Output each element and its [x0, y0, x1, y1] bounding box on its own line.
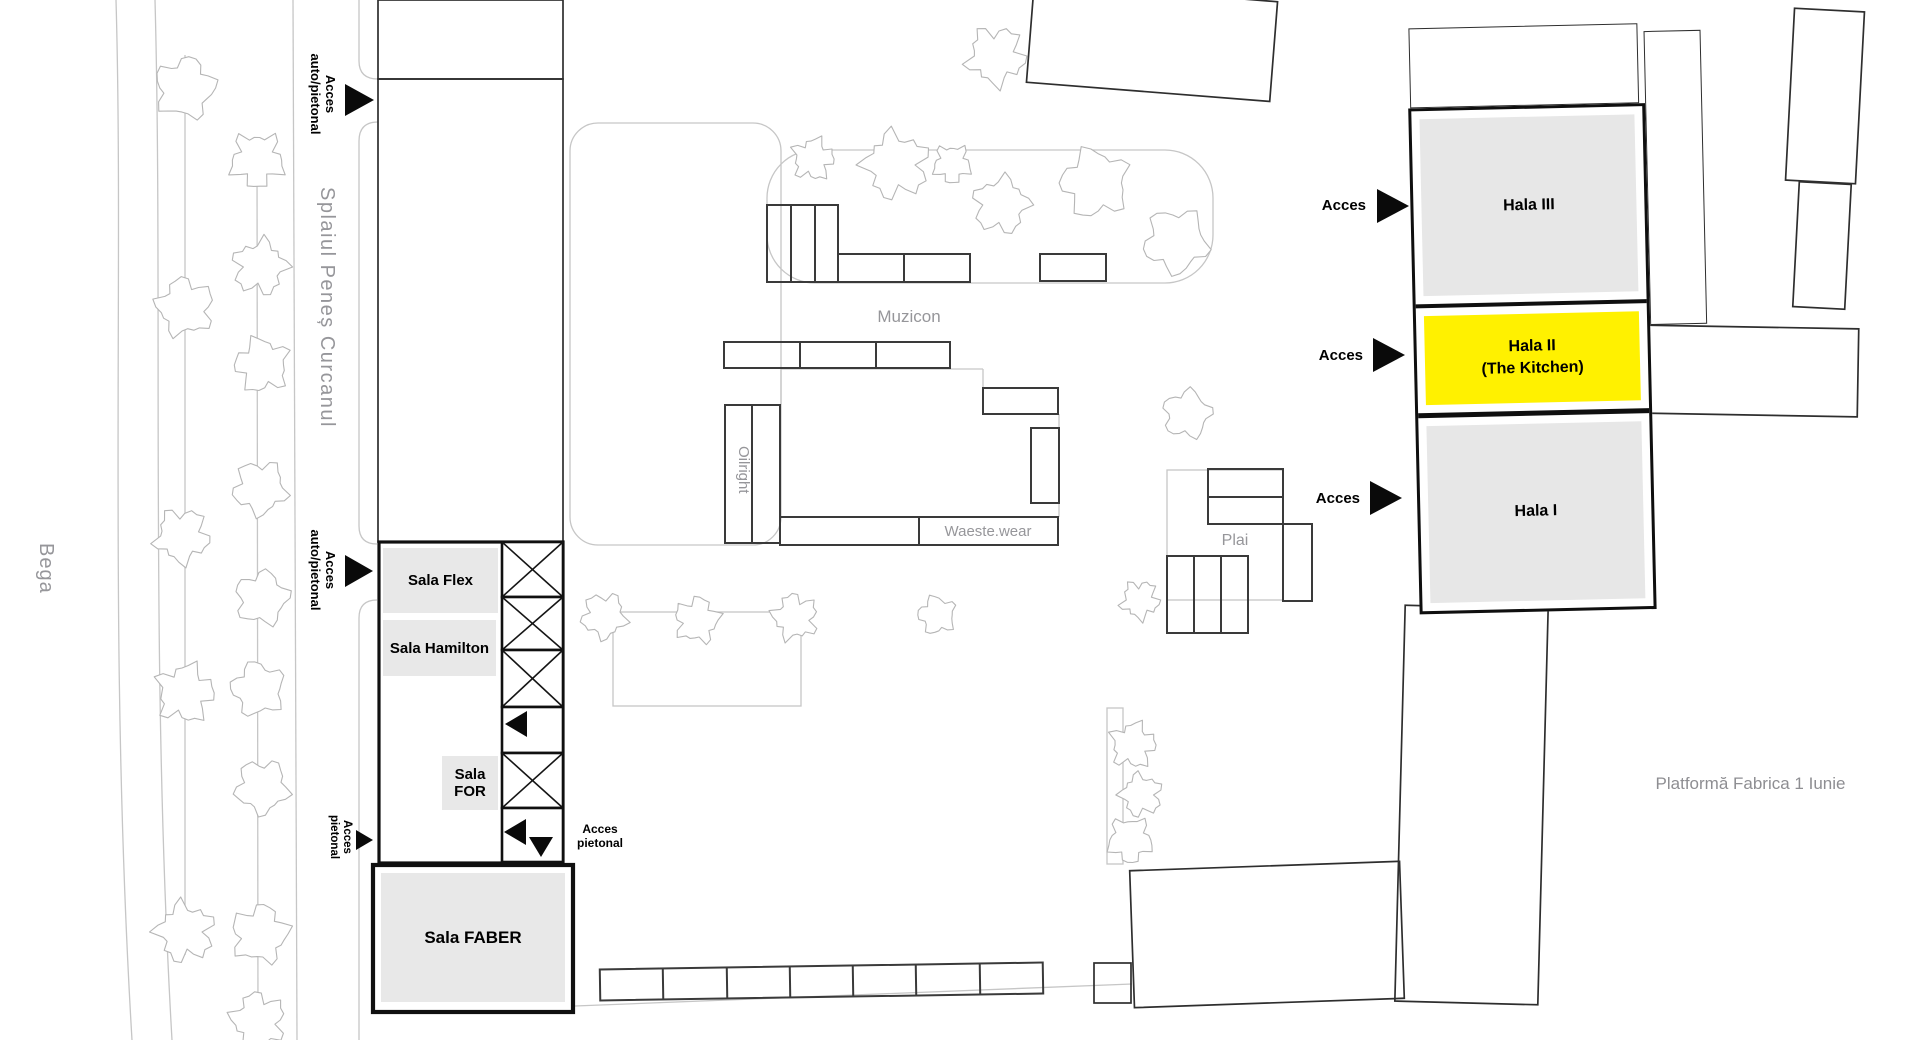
structure-group [1283, 524, 1312, 601]
structure-outline [378, 0, 563, 79]
structure-outline [904, 254, 970, 282]
tree-icon [973, 172, 1034, 234]
structure-outline [983, 388, 1058, 414]
structure-group [838, 254, 904, 282]
tree-icon [962, 29, 1027, 91]
tree-icon [580, 594, 630, 642]
hala-i-area: Hala I [1426, 421, 1645, 603]
tree-icon [236, 569, 291, 627]
access-arrow-right [345, 555, 373, 587]
tree-icon [1163, 387, 1213, 440]
halls-main-block: Hala III Hala II (The Kitchen) Hala I [1408, 103, 1656, 614]
plai-label: Plai [1185, 532, 1285, 550]
access-label-hala1: Acces [1268, 490, 1360, 507]
hala-ii-label-line1: Hala II [1508, 335, 1556, 358]
access-pedestrian-label-left: Acces pietonal [327, 806, 353, 868]
oilright-label: Oilright [735, 446, 752, 516]
sala-hamilton-label: Sala Hamilton [383, 620, 496, 676]
hala-i-section: Hala I [1418, 413, 1653, 612]
structure-group [904, 254, 970, 282]
structure-group [1094, 963, 1131, 1003]
access-label-hala3: Acces [1274, 197, 1366, 214]
structure-group [1040, 254, 1106, 281]
corridor-cell [502, 707, 563, 753]
structure-group [1031, 428, 1059, 503]
muzicon-label: Muzicon [839, 307, 979, 327]
access-pedestrian-label-corridor: Acces pietonal [570, 822, 630, 850]
tree-icon [932, 145, 971, 182]
tree-icon [1059, 147, 1130, 216]
hala-iii-area: Hala III [1419, 114, 1638, 296]
tree-icon [234, 336, 290, 391]
access-arrow-right-small [356, 830, 373, 850]
structure-outline [1793, 182, 1851, 310]
structure-outline [1283, 524, 1312, 601]
tree-icon [676, 596, 724, 644]
structure-outline [1130, 861, 1405, 1007]
site-map: Splaiul Peneș Curcanul Bega Acces auto/p… [0, 0, 1920, 1040]
map-line [359, 122, 378, 544]
halls-annex-north [1408, 23, 1639, 108]
structure-outline [1094, 963, 1131, 1003]
tree-icon [229, 133, 286, 186]
structure-outline [1040, 254, 1106, 281]
tree-icon [232, 234, 292, 294]
structure-outline [1395, 605, 1548, 1005]
structure-outline [1167, 556, 1248, 633]
structure-group [724, 342, 950, 368]
tree-icon [856, 126, 929, 200]
structure-group [378, 79, 563, 542]
street-name-label: Splaiul Peneș Curcanul [315, 187, 338, 467]
tree-icon [1109, 720, 1157, 766]
access-arrow-right [345, 84, 374, 116]
structure-group [1167, 556, 1248, 633]
tree-icon [151, 510, 210, 568]
structure-outline [600, 963, 1043, 1001]
tree-icon [233, 761, 292, 817]
map-line [116, 0, 132, 1040]
access-arrow-right [1370, 481, 1402, 515]
halls-building: Hala III Hala II (The Kitchen) Hala I [1406, 22, 1719, 615]
access-label-hala2: Acces [1271, 347, 1363, 364]
tree-icon [918, 595, 956, 633]
structure-outline [1031, 428, 1059, 503]
tree-icon [791, 136, 835, 179]
tree-icon [153, 277, 213, 339]
tree-icon [1118, 582, 1161, 623]
structure-group [378, 0, 563, 79]
hala-ii-label-line2: (The Kitchen) [1481, 357, 1584, 381]
hala-ii-section: Hala II (The Kitchen) [1416, 303, 1649, 413]
tree-icon [157, 57, 218, 120]
tree-icon [230, 662, 284, 716]
waeste-wear-label: Waeste.wear [918, 523, 1058, 540]
tree-icon [154, 661, 214, 720]
access-arrow-right [1373, 338, 1405, 372]
hala-i-label: Hala I [1514, 500, 1557, 523]
structure-group [600, 963, 1043, 1001]
structure-outline [1786, 8, 1865, 183]
structure-outline [767, 205, 838, 282]
river-name-label: Bega [34, 543, 57, 613]
hala-iii-section: Hala III [1411, 106, 1646, 304]
structure-outline [838, 254, 904, 282]
access-auto-pedestrian-label-top: Acces auto/pietonal [308, 45, 338, 143]
structure-group [1786, 8, 1865, 183]
structure-outline [378, 79, 563, 542]
structure-outline [1026, 0, 1277, 101]
tree-icon [227, 992, 284, 1040]
structure-group [1793, 182, 1851, 310]
map-line [781, 369, 1059, 517]
structure-outline [724, 342, 950, 368]
tree-icon [150, 897, 215, 963]
access-auto-pedestrian-label-mid: Acces auto/pietonal [308, 521, 338, 619]
access-arrow-right [1377, 189, 1409, 223]
hala-iii-label: Hala III [1503, 194, 1555, 217]
structure-group [1395, 605, 1548, 1005]
map-line [359, 0, 378, 79]
sala-for-label: Sala FOR [442, 756, 498, 810]
structure-group [725, 405, 780, 543]
halls-annex-east [1644, 30, 1708, 325]
tree-icon [1107, 818, 1152, 862]
hala-ii-highlighted-area: Hala II (The Kitchen) [1424, 311, 1641, 405]
tree-icon [232, 463, 290, 519]
tree-icon [769, 593, 817, 643]
sala-flex-label: Sala Flex [383, 548, 498, 613]
structure-group [1026, 0, 1277, 101]
map-line [293, 0, 297, 1040]
structure-group [983, 388, 1058, 414]
tree-icon [233, 905, 292, 966]
structure-group [767, 205, 838, 282]
platform-fabrica-label: Platformă Fabrica 1 Iunie [1628, 774, 1873, 794]
structure-group [1130, 861, 1405, 1007]
sala-faber-label: Sala FABER [381, 873, 565, 1002]
